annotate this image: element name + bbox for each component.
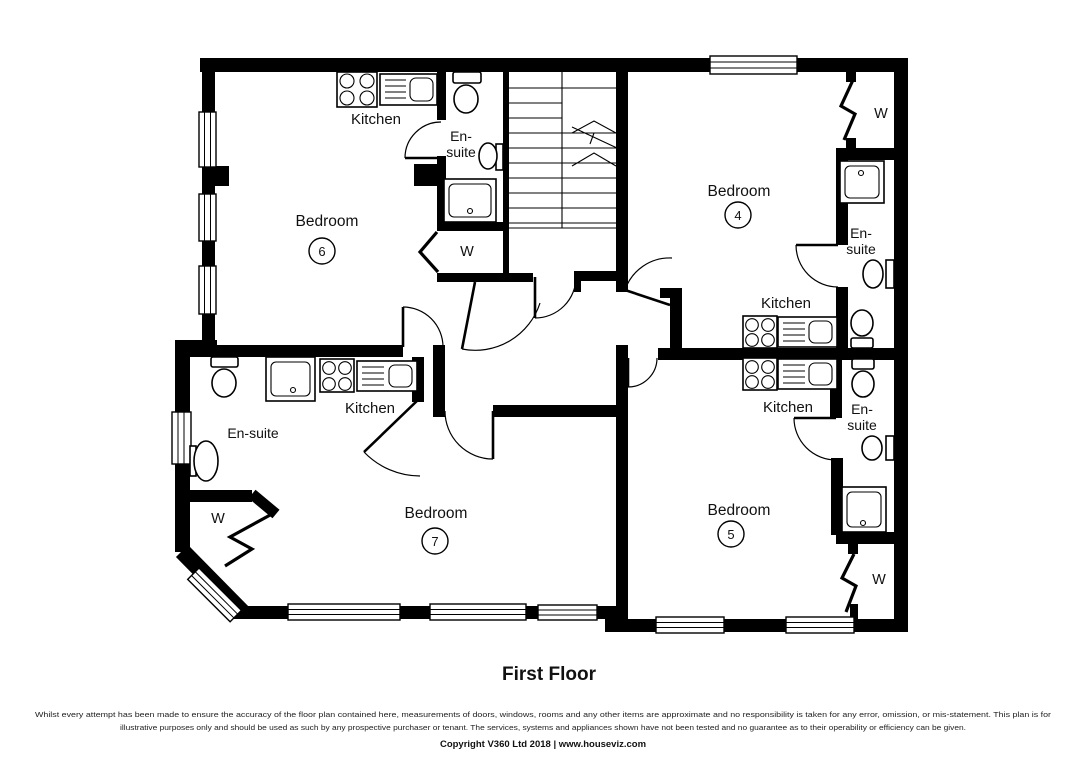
kitchen5-label: Kitchen xyxy=(763,399,813,416)
door-bedroom7 xyxy=(445,411,493,459)
bedroom6-number: 6 xyxy=(318,244,325,259)
wall-w6-bottom xyxy=(437,273,533,282)
wall-pier-bedroom6 xyxy=(414,164,442,186)
window-bottom-5 xyxy=(786,617,854,633)
window-bottom-3 xyxy=(538,605,597,620)
door-ensuite6 xyxy=(405,122,441,158)
disclaimer-line1: Whilst every attempt has been made to en… xyxy=(35,710,1052,719)
wall-bottom-bedroom5 xyxy=(605,619,908,632)
bedroom4-label: Bedroom xyxy=(708,183,771,200)
hob-kitchen4 xyxy=(743,316,777,348)
wall-pier-left xyxy=(215,166,229,186)
floor-plan-drawing: Kitchen En- suite W Bedroom 6 Bedroom 4 … xyxy=(0,0,1086,768)
bedroom5-label: Bedroom xyxy=(708,502,771,519)
hob-kitchen6 xyxy=(337,72,377,107)
wardrobe5-label: W xyxy=(872,572,886,588)
wall-right xyxy=(894,58,908,632)
wall-ensuite6-left-upper xyxy=(437,58,446,120)
floor-plan-page: Kitchen En- suite W Bedroom 6 Bedroom 4 … xyxy=(0,0,1086,768)
window-bottom-4 xyxy=(656,617,724,633)
window-bottom-2 xyxy=(430,604,526,620)
bedroom5-number: 5 xyxy=(727,527,734,542)
door-ensuite5 xyxy=(794,418,836,460)
wall-stairs-bottom xyxy=(577,271,618,281)
wall-bedroom75-divider xyxy=(616,345,628,632)
stair-direction-marks xyxy=(572,121,617,166)
window-left-2 xyxy=(199,194,216,241)
ensuite5-label-line1: En- xyxy=(851,401,873,417)
hob-kitchen5 xyxy=(743,358,777,390)
kitchen6-label: Kitchen xyxy=(351,111,401,128)
toilet-ensuite5 xyxy=(852,359,874,397)
door-wardrobe5-fold xyxy=(842,554,856,612)
basin-ensuite7 xyxy=(190,441,218,481)
wall-w4-stub-top xyxy=(846,72,856,82)
wall-stairs-right xyxy=(616,58,628,292)
sink-kitchen4 xyxy=(778,317,837,347)
door-wardrobe7-fold xyxy=(225,514,272,566)
window-left-3 xyxy=(199,266,216,314)
door-wardrobe4-fold xyxy=(841,80,855,140)
bedroom7-number: 7 xyxy=(431,534,438,549)
shower-ensuite7 xyxy=(266,357,315,401)
shower-ensuite6 xyxy=(444,179,496,222)
wall-w5-stub-top xyxy=(848,544,858,554)
door-stairs-hall-right xyxy=(535,277,576,318)
bedroom7-label: Bedroom xyxy=(405,505,468,522)
kitchen7-label: Kitchen xyxy=(345,400,395,417)
door-wardrobe6-fold xyxy=(420,232,438,272)
shower-ensuite5 xyxy=(842,487,886,532)
window-left-1 xyxy=(199,112,216,167)
wall-hall-left xyxy=(433,345,445,417)
plan-footer: First Floor Whilst every attempt has bee… xyxy=(35,664,1052,750)
wall-ensuite4-top xyxy=(836,148,894,160)
ensuite4-label-line2: suite xyxy=(846,241,876,257)
toilet-ensuite6 xyxy=(453,72,481,113)
window-left-4 xyxy=(172,412,191,464)
wall-w4-stub-bottom xyxy=(846,138,856,148)
toilet-ensuite7 xyxy=(211,357,238,397)
window-bottom-1 xyxy=(288,604,400,620)
wall-w7-angle xyxy=(252,494,276,514)
window-top xyxy=(710,56,797,74)
sink-kitchen5 xyxy=(778,359,837,389)
ensuite5-label-line2: suite xyxy=(847,417,877,433)
staircase xyxy=(509,72,617,228)
door-ensuite4 xyxy=(796,245,838,287)
bedroom4-number: 4 xyxy=(734,208,741,223)
door-bedroom5 xyxy=(628,358,657,387)
sink-kitchen6 xyxy=(380,74,437,105)
basin-ensuite4 xyxy=(863,260,894,288)
ensuite7-label: En-suite xyxy=(227,425,279,441)
wall-ensuite5-bottom xyxy=(836,532,894,544)
basin-ensuite5 xyxy=(862,436,894,460)
wall-stairs-left xyxy=(503,58,509,282)
copyright-line: Copyright V360 Ltd 2018 | www.houseviz.c… xyxy=(440,739,646,750)
toilet-ensuite4 xyxy=(851,310,873,348)
wall-bedroom6-bottom xyxy=(175,345,403,357)
ensuite6-label-line1: En- xyxy=(450,128,472,144)
wardrobe4-label: W xyxy=(874,106,888,122)
wall-ensuite6-w6-divider xyxy=(437,222,507,231)
ensuite4-label-line1: En- xyxy=(850,225,872,241)
kitchen4-label: Kitchen xyxy=(761,295,811,312)
wall-hall-bottom xyxy=(493,405,618,417)
sink-kitchen7 xyxy=(357,361,417,391)
disclaimer-line2: illustrative purposes only and should be… xyxy=(120,723,966,732)
hob-kitchen7 xyxy=(320,359,354,392)
wall-w7-top xyxy=(190,490,252,502)
wall-top xyxy=(200,58,908,72)
wardrobe7-label: W xyxy=(211,511,225,527)
door-stairs-hall-left xyxy=(462,282,540,350)
ensuite6-label-line2: suite xyxy=(446,144,476,160)
wall-vestibule-stub xyxy=(670,288,682,350)
door-bedroom6 xyxy=(403,307,443,347)
plan-title: First Floor xyxy=(502,664,597,685)
basin-ensuite6 xyxy=(479,143,503,170)
bedroom6-label: Bedroom xyxy=(296,213,359,230)
wardrobe6-label: W xyxy=(460,244,474,260)
shower-ensuite4 xyxy=(840,161,884,203)
